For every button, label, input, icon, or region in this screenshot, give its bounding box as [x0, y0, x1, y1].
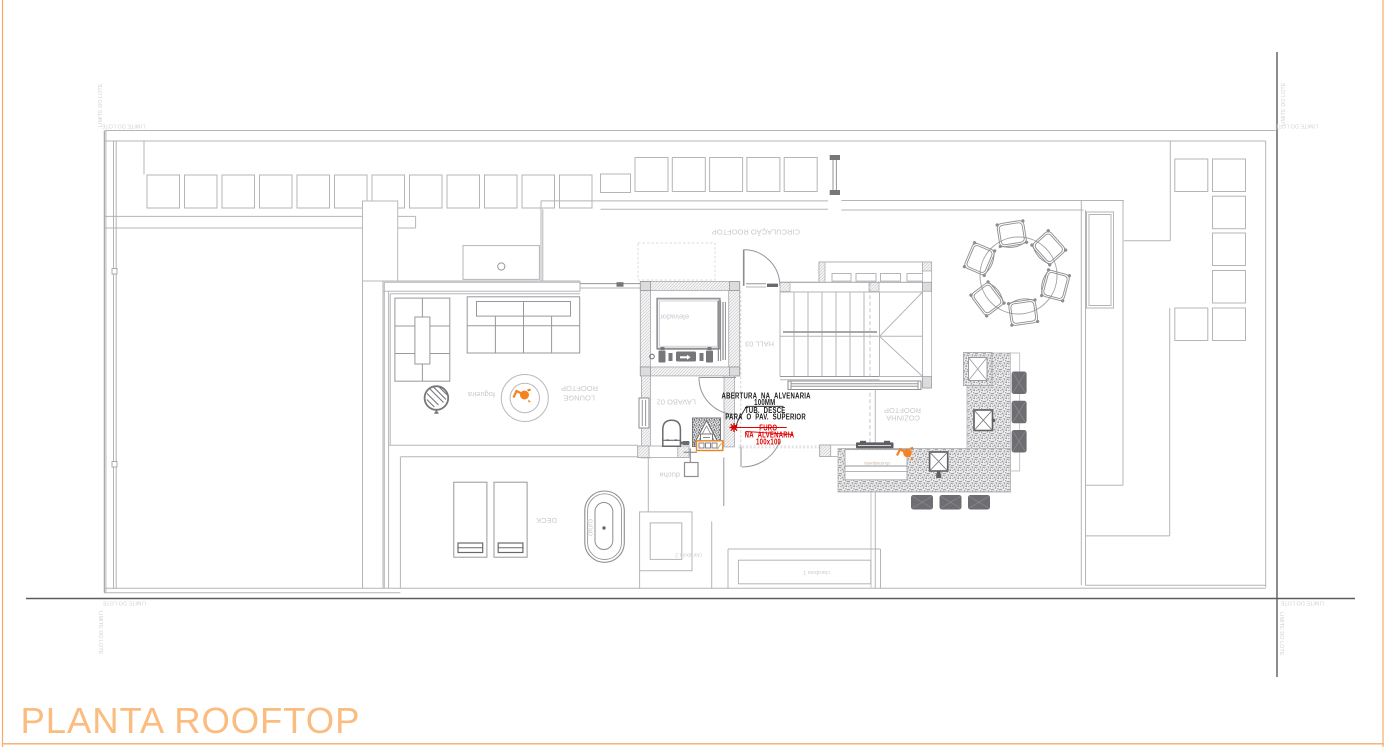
svg-text:COZINHA: COZINHA: [886, 414, 920, 423]
svg-text:ROOFTOP: ROOFTOP: [884, 406, 921, 415]
svg-text:PARA O PAV. SUPERIOR: PARA O PAV. SUPERIOR: [725, 413, 806, 422]
svg-text:CIRCULAÇÃO ROOFTOP: CIRCULAÇÃO ROOFTOP: [712, 228, 800, 237]
svg-text:LIMITE DO LOTE: LIMITE DO LOTE: [1280, 600, 1324, 606]
svg-text:DECK: DECK: [536, 516, 557, 525]
svg-text:LIMITE DO LOTE: LIMITE DO LOTE: [1281, 82, 1287, 126]
svg-text:HALL 03: HALL 03: [745, 340, 774, 349]
svg-text:100x100: 100x100: [756, 438, 781, 447]
svg-text:PLANTA ROOFTOP: PLANTA ROOFTOP: [21, 700, 361, 741]
svg-text:claraboia 2: claraboia 2: [675, 552, 702, 558]
svg-text:LIMITE DO LOTE: LIMITE DO LOTE: [1274, 123, 1318, 129]
svg-text:LOUNGE: LOUNGE: [563, 394, 595, 403]
svg-text:ducha: ducha: [659, 470, 680, 479]
svg-text:churrasqueira: churrasqueira: [864, 461, 890, 466]
svg-text:LIMITE DO LOTE: LIMITE DO LOTE: [98, 83, 104, 127]
svg-text:LIMITE DO LOTE: LIMITE DO LOTE: [101, 123, 145, 129]
svg-text:LIMITE DO LOTE: LIMITE DO LOTE: [102, 600, 146, 606]
svg-text:ofurô: ofurô: [586, 519, 595, 536]
svg-text:ROOFTOP: ROOFTOP: [561, 384, 598, 393]
svg-text:fogueira: fogueira: [467, 390, 495, 399]
svg-text:elevador: elevador: [660, 313, 689, 322]
svg-text:claraboia 1: claraboia 1: [803, 569, 830, 575]
svg-text:LIMITE DO LOTE: LIMITE DO LOTE: [97, 611, 103, 655]
svg-text:LAVABO 02: LAVABO 02: [657, 398, 696, 407]
svg-text:LIMITE DO LOTE: LIMITE DO LOTE: [1278, 612, 1284, 656]
